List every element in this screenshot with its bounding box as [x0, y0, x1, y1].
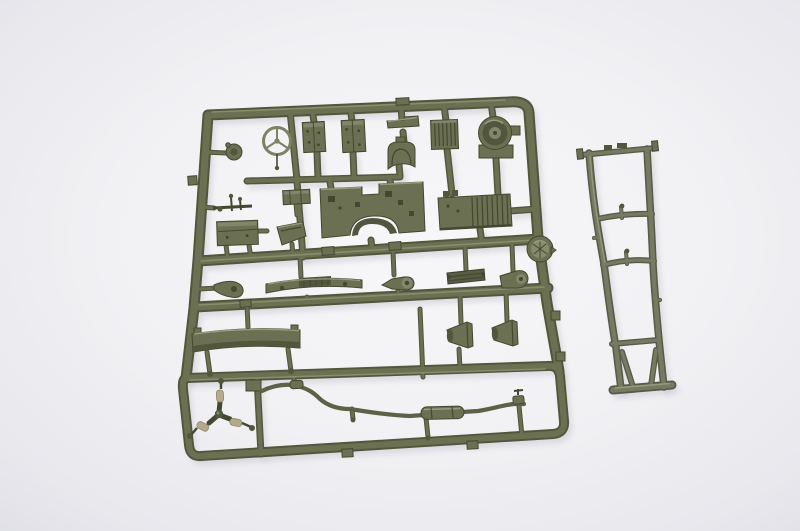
radiator-core	[431, 120, 459, 150]
kit-sprue-photo	[0, 0, 800, 531]
small-bracket-box	[283, 189, 311, 204]
photo-canvas	[0, 0, 800, 531]
tool-box	[217, 220, 259, 245]
box-part-a	[302, 121, 326, 152]
box-part-b	[341, 119, 366, 152]
